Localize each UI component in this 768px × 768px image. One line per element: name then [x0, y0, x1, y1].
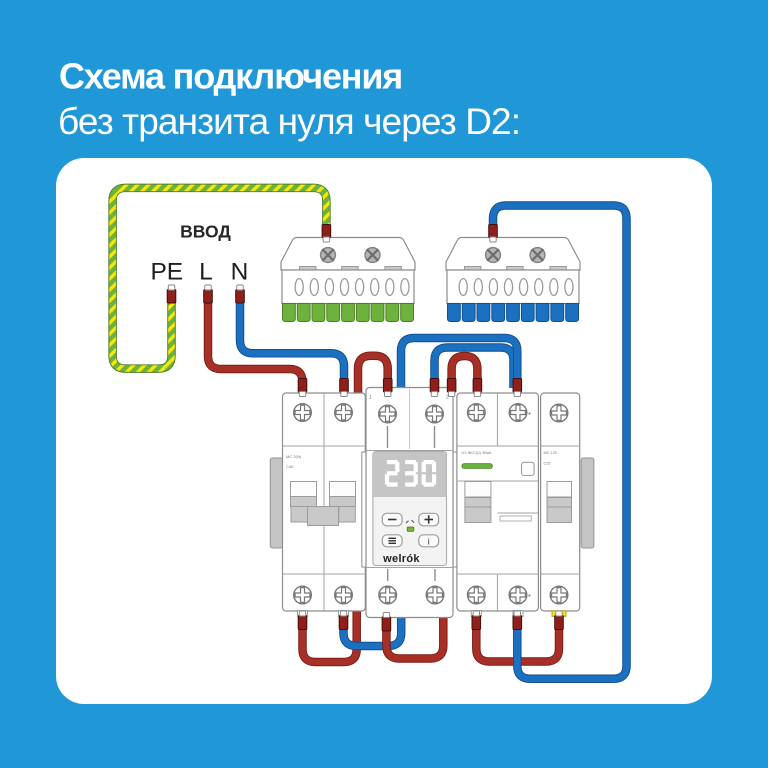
svg-text:без транзита нуля через D2:: без транзита нуля через D2:	[58, 101, 520, 142]
svg-text:C40: C40	[286, 464, 294, 469]
svg-text:1: 1	[369, 395, 372, 401]
svg-text:UX BKC(U) 30мА: UX BKC(U) 30мА	[462, 451, 492, 455]
svg-text:Схема подключения: Схема подключения	[59, 56, 402, 97]
svg-text:i: i	[428, 537, 430, 547]
svg-text:welrók: welrók	[382, 553, 420, 565]
svg-text:L: L	[199, 259, 213, 286]
svg-text:ВВОД: ВВОД	[180, 222, 231, 242]
svg-text:MC 2(N): MC 2(N)	[286, 454, 302, 459]
svg-text:C25: C25	[544, 462, 551, 466]
svg-text:PE: PE	[150, 259, 183, 286]
svg-text:MC 125: MC 125	[544, 451, 557, 455]
svg-text:N: N	[231, 259, 249, 286]
